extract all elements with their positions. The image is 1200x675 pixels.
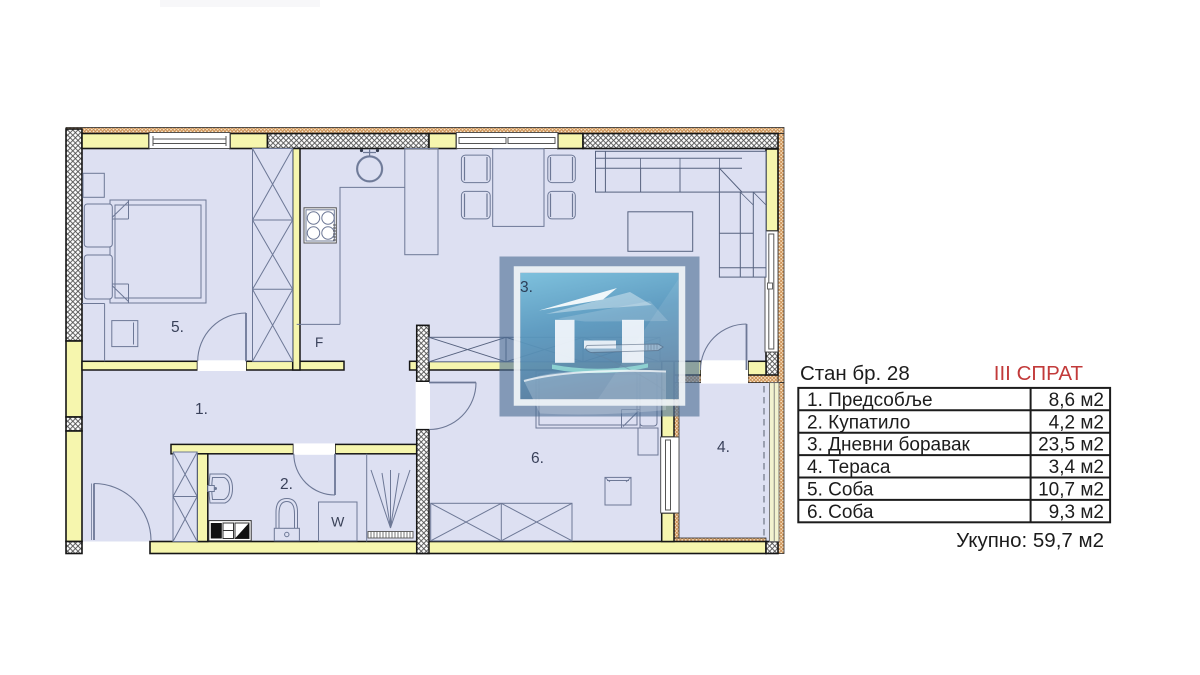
svg-text:III СПРАТ: III СПРАТ (994, 362, 1084, 385)
svg-text:2. Купатило: 2. Купатило (807, 412, 910, 433)
svg-text:W: W (331, 514, 345, 530)
svg-text:23,5 м2: 23,5 м2 (1038, 435, 1104, 456)
svg-text:Стан бр. 28: Стан бр. 28 (800, 362, 910, 385)
svg-text:9,3 м2: 9,3 м2 (1049, 502, 1104, 523)
svg-text:3.: 3. (520, 279, 533, 296)
svg-text:5. Соба: 5. Соба (807, 480, 874, 501)
svg-text:8,6 м2: 8,6 м2 (1049, 390, 1104, 411)
svg-text:3. Дневни боравак: 3. Дневни боравак (807, 435, 971, 456)
svg-text:10,7 м2: 10,7 м2 (1038, 480, 1104, 501)
svg-text:3,4 м2: 3,4 м2 (1049, 457, 1104, 478)
svg-text:4.: 4. (717, 439, 730, 456)
svg-text:6. Соба: 6. Соба (807, 502, 874, 523)
svg-text:2.: 2. (280, 476, 293, 493)
svg-text:1.: 1. (195, 401, 208, 418)
svg-text:F: F (315, 335, 323, 350)
svg-text:4. Тераса: 4. Тераса (807, 457, 891, 478)
svg-text:6.: 6. (531, 450, 544, 467)
svg-text:5.: 5. (171, 319, 184, 336)
svg-text:1. Предсобље: 1. Предсобље (807, 390, 933, 411)
svg-text:4,2 м2: 4,2 м2 (1049, 412, 1104, 433)
svg-text:Укупно: 59,7 м2: Укупно: 59,7 м2 (956, 529, 1104, 552)
